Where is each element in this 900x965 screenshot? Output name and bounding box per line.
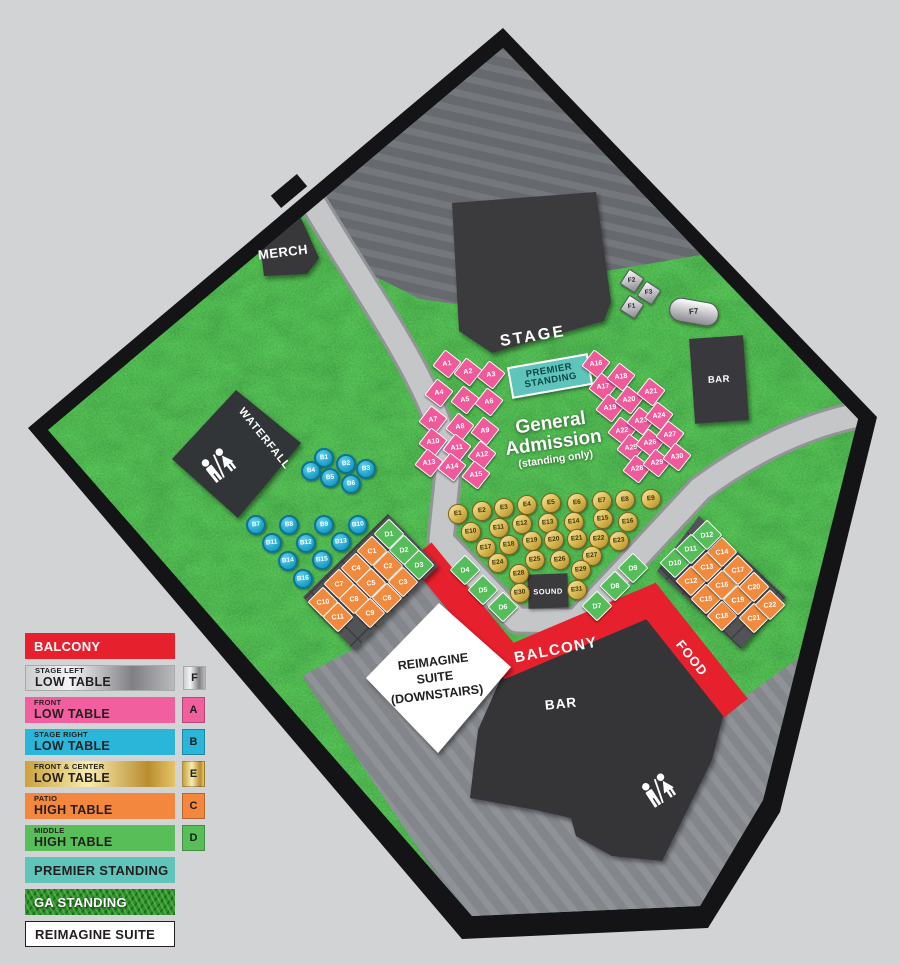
table-seat-label: E2	[478, 507, 487, 514]
table-seat-B7[interactable]: B7	[246, 515, 266, 535]
table-seat-label: A3	[486, 371, 496, 379]
legend-row-label: BALCONY	[34, 639, 175, 654]
table-seat-label: E1	[454, 510, 463, 517]
legend-row-ga-standing: GA STANDING	[25, 889, 175, 915]
table-seat-label: A20	[622, 396, 636, 404]
table-seat-label: D7	[592, 602, 602, 610]
table-seat-label: A11	[450, 444, 463, 452]
legend-row-patio: PATIOHIGH TABLEC	[25, 793, 175, 819]
table-seat-label: A6	[484, 398, 494, 406]
table-seat-E21[interactable]: E21	[567, 529, 587, 549]
table-seat-label: B10	[352, 521, 365, 529]
table-seat-label: C21	[747, 614, 761, 622]
table-seat-label: C8	[349, 595, 359, 603]
table-seat-label: E27	[586, 552, 598, 560]
table-seat-B14[interactable]: B14	[278, 551, 298, 571]
table-seat-label: C3	[398, 578, 408, 586]
table-seat-label: E22	[593, 535, 605, 543]
table-seat-label: B16	[297, 575, 310, 583]
table-seat-label: A16	[589, 360, 603, 368]
table-seat-B4[interactable]: B4	[301, 461, 321, 481]
table-seat-label: A24	[652, 412, 666, 420]
table-seat-B13[interactable]: B13	[331, 532, 351, 552]
table-seat-label: E15	[597, 515, 609, 523]
table-seat-label: B12	[300, 539, 313, 547]
table-seat-label: F2	[628, 277, 636, 284]
table-seat-E2[interactable]: E2	[472, 501, 492, 521]
table-seat-label: A29	[650, 459, 664, 467]
table-seat-label: E19	[526, 537, 538, 545]
table-seat-label: E9	[647, 495, 656, 502]
table-seat-label: B3	[362, 465, 371, 472]
legend-row-front: FRONTLOW TABLEA	[25, 697, 175, 723]
table-seat-label: A28	[630, 465, 644, 473]
table-seat-label: A8	[455, 423, 465, 431]
table-seat-label: D2	[399, 546, 409, 554]
table-seat-label: E11	[493, 524, 505, 532]
table-seat-label: A22	[615, 427, 629, 435]
table-seat-E30[interactable]: E30	[510, 583, 530, 603]
table-seat-label: B8	[285, 521, 294, 528]
table-seat-label: E14	[568, 518, 580, 526]
table-seat-label: A17	[596, 383, 610, 391]
table-seat-B9[interactable]: B9	[314, 515, 334, 535]
table-seat-label: D5	[478, 586, 488, 594]
table-seat-label: E7	[598, 497, 607, 504]
table-seat-label: D11	[684, 545, 697, 553]
table-seat-label: A18	[614, 373, 628, 381]
table-seat-label: A27	[663, 431, 677, 439]
legend-row-type: LOW TABLE	[34, 740, 175, 753]
table-seat-label: A15	[469, 471, 483, 479]
table-seat-E26[interactable]: E26	[550, 550, 570, 570]
table-seat-label: B4	[307, 467, 316, 474]
table-seat-label: A19	[603, 404, 617, 412]
table-seat-label: D12	[700, 531, 714, 539]
table-seat-B5[interactable]: B5	[320, 468, 340, 488]
table-seat-label: B13	[335, 538, 348, 546]
legend-row-stage-right: STAGE RIGHTLOW TABLEB	[25, 729, 175, 755]
table-seat-label: C16	[715, 581, 729, 589]
table-seat-label: A7	[428, 416, 438, 424]
table-seat-E4[interactable]: E4	[517, 495, 537, 515]
table-seat-E19[interactable]: E19	[522, 531, 542, 551]
table-seat-label: E5	[547, 499, 556, 506]
table-seat-label: D8	[610, 582, 620, 590]
table-seat-E6[interactable]: E6	[567, 493, 587, 513]
table-seat-B10[interactable]: B10	[348, 515, 368, 535]
table-seat-label: E13	[542, 519, 554, 527]
table-seat-label: C22	[763, 601, 777, 609]
table-seat-B11[interactable]: B11	[262, 533, 282, 553]
table-seat-label: E10	[465, 528, 477, 536]
table-seat-E7[interactable]: E7	[592, 491, 612, 511]
table-seat-label: C15	[699, 595, 713, 603]
table-seat-label: B15	[316, 556, 329, 564]
legend-badge-A: A	[182, 697, 205, 723]
table-seat-B15[interactable]: B15	[312, 550, 332, 570]
table-seat-E15[interactable]: E15	[593, 509, 613, 529]
table-seat-label: F1	[628, 303, 636, 310]
table-seat-label: E6	[573, 499, 582, 506]
table-seat-E28[interactable]: E28	[509, 564, 529, 584]
table-seat-label: A26	[643, 439, 657, 447]
table-seat-label: C10	[316, 598, 330, 606]
table-seat-E16[interactable]: E16	[618, 512, 638, 532]
table-seat-label: C2	[383, 562, 393, 570]
legend-row-label: GA STANDING	[34, 895, 175, 910]
table-seat-label: E21	[571, 535, 583, 543]
table-seat-E20[interactable]: E20	[544, 530, 564, 550]
table-seat-label: E25	[529, 556, 541, 564]
table-seat-label: C13	[700, 563, 714, 571]
table-seat-E24[interactable]: E24	[488, 553, 508, 573]
table-seat-label: E8	[621, 496, 630, 503]
table-seat-label: C9	[365, 609, 375, 617]
table-seat-B16[interactable]: B16	[293, 569, 313, 589]
legend-row-stage-left: STAGE LEFTLOW TABLEF	[25, 665, 175, 691]
legend-badge-C: C	[182, 793, 205, 819]
bar-top-label: BAR	[708, 375, 731, 386]
table-seat-B8[interactable]: B8	[279, 515, 299, 535]
table-seat-label: F3	[645, 289, 653, 296]
table-seat-E10[interactable]: E10	[461, 522, 481, 542]
table-seat-label: D6	[498, 603, 508, 611]
table-seat-label: C17	[731, 566, 745, 574]
table-seat-label: C7	[334, 580, 344, 588]
table-seat-E18[interactable]: E18	[499, 535, 519, 555]
legend-row-type: HIGH TABLE	[34, 836, 175, 849]
legend-row-type: LOW TABLE	[34, 772, 175, 785]
table-seat-label: B1	[320, 454, 329, 461]
table-seat-B2[interactable]: B2	[336, 454, 356, 474]
table-seat-label: C18	[715, 612, 729, 620]
table-seat-E5[interactable]: E5	[541, 493, 561, 513]
table-seat-label: A21	[644, 388, 658, 396]
table-seat-B12[interactable]: B12	[296, 533, 316, 553]
table-seat-label: E31	[571, 586, 583, 594]
table-seat-E3[interactable]: E3	[494, 498, 514, 518]
table-seat-label: A1	[442, 360, 452, 368]
table-seat-E9[interactable]: E9	[641, 489, 661, 509]
legend-badge-E: E	[182, 761, 205, 787]
table-seat-label: D4	[460, 566, 470, 574]
table-seat-label: D10	[668, 559, 682, 567]
legend-row-reimagine-suite: REIMAGINE SUITE	[25, 921, 175, 947]
legend-row-balcony: BALCONY	[25, 633, 175, 659]
table-seat-label: E3	[500, 504, 509, 511]
table-seat-label: C20	[747, 583, 761, 591]
table-seat-label: A4	[434, 389, 444, 397]
table-seat-label: D3	[414, 561, 424, 569]
table-seat-label: B9	[320, 521, 329, 528]
table-seat-label: A10	[426, 438, 440, 446]
table-seat-label: E24	[492, 559, 504, 567]
table-seat-label: C12	[684, 577, 698, 585]
legend-row-type: HIGH TABLE	[34, 804, 175, 817]
legend-row-label: REIMAGINE SUITE	[35, 927, 174, 942]
table-seat-label: A2	[463, 368, 473, 376]
table-seat-label: F7	[689, 308, 699, 317]
table-seat-label: A12	[475, 451, 489, 459]
table-seat-label: A9	[480, 427, 490, 435]
legend-row-middle: MIDDLEHIGH TABLED	[25, 825, 175, 851]
table-seat-E23[interactable]: E23	[609, 531, 629, 551]
venue-seating-map: MERCH STAGE WATERFALL BAR PREMIER STANDI…	[0, 0, 900, 965]
bar-bottom-label: BAR	[544, 696, 577, 713]
table-seat-label: E16	[622, 518, 634, 526]
table-seat-label: E30	[514, 589, 526, 597]
table-seat-label: B14	[282, 557, 295, 565]
legend-row-premier-standing: PREMIER STANDING	[25, 857, 175, 883]
legend: BALCONYSTAGE LEFTLOW TABLEFFRONTLOW TABL…	[25, 633, 230, 953]
table-seat-label: E12	[516, 520, 528, 528]
table-seat-label: E17	[480, 544, 492, 552]
table-seat-label: D1	[384, 530, 394, 538]
legend-row-type: LOW TABLE	[34, 708, 175, 721]
table-seat-label: B5	[326, 474, 335, 481]
legend-row-type: LOW TABLE	[35, 676, 174, 689]
table-seat-label: C5	[366, 579, 376, 587]
table-seat-label: C19	[731, 596, 745, 604]
table-seat-E29[interactable]: E29	[571, 560, 591, 580]
legend-row-label: PREMIER STANDING	[34, 863, 175, 878]
table-seat-label: C11	[331, 613, 344, 621]
table-seat-label: E23	[613, 537, 625, 545]
legend-badge-D: D	[182, 825, 205, 851]
table-seat-label: C6	[382, 594, 392, 602]
table-seat-label: A13	[422, 459, 436, 467]
table-seat-label: E26	[554, 556, 566, 564]
table-seat-E8[interactable]: E8	[615, 490, 635, 510]
table-seat-label: A14	[445, 463, 459, 471]
table-seat-B6[interactable]: B6	[341, 474, 361, 494]
table-seat-E25[interactable]: E25	[525, 550, 545, 570]
table-seat-E31[interactable]: E31	[567, 580, 587, 600]
table-seat-E1[interactable]: E1	[448, 504, 468, 524]
legend-badge-B: B	[182, 729, 205, 755]
table-seat-label: E28	[513, 570, 525, 578]
table-seat-B3[interactable]: B3	[356, 459, 376, 479]
sound-booth: SOUND	[527, 573, 568, 608]
table-seat-label: B2	[342, 460, 351, 467]
table-seat-label: A5	[460, 396, 470, 404]
table-seat-label: C4	[351, 564, 361, 572]
table-seat-label: B6	[347, 480, 356, 487]
table-seat-label: B11	[266, 539, 278, 547]
legend-badge-F: F	[183, 666, 206, 690]
table-seat-label: D9	[628, 564, 638, 572]
table-seat-label: A30	[670, 453, 684, 461]
table-seat-label: C1	[367, 547, 377, 555]
table-seat-label: C14	[715, 548, 729, 556]
legend-row-front-center: FRONT & CENTERLOW TABLEE	[25, 761, 175, 787]
table-seat-label: E18	[503, 541, 515, 549]
table-seat-label: E4	[523, 501, 532, 508]
table-seat-label: E29	[575, 566, 587, 574]
table-seat-label: E20	[548, 536, 560, 544]
table-seat-label: B7	[252, 521, 261, 528]
